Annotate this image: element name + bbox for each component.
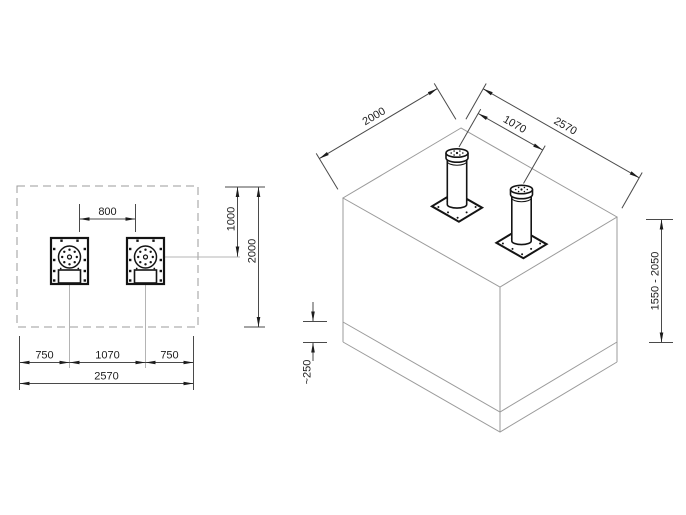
- dim-depth-range: 1550 - 2050: [646, 220, 673, 343]
- bollard-iso-left: [432, 149, 482, 222]
- dim-depth-range-label: 1550 - 2050: [650, 252, 662, 311]
- dim-clear-spacing: 800: [80, 204, 136, 232]
- dim-base-thickness-label: ~250: [302, 360, 314, 385]
- dim-edge-left-label: 750: [35, 350, 53, 362]
- dim-bottom-row: 750 1070 750 2570: [20, 336, 194, 390]
- dim-center-spacing-label: 1070: [95, 350, 119, 362]
- dim-overall-width-label: 2570: [94, 371, 118, 383]
- bollard-flange-plan-left: [51, 238, 88, 284]
- technical-drawing: 800 1000 2000 750 1070 750 2570: [0, 0, 686, 515]
- drawing-canvas: 800 1000 2000 750 1070 750 2570: [0, 0, 686, 515]
- dim-overall-depth: 2000: [244, 187, 265, 327]
- bollard-iso-right: [496, 185, 546, 258]
- dim-edge-right-label: 750: [160, 350, 178, 362]
- plan-view: 800 1000 2000 750 1070 750 2570: [17, 186, 265, 390]
- dim-center-from-top-label: 1000: [226, 207, 238, 231]
- dim-bollard-spacing: 1070: [459, 109, 545, 183]
- dim-clear-spacing-label: 800: [98, 206, 116, 218]
- bollard-flange-plan-right: [127, 238, 164, 284]
- dim-pit-length-label: 2570: [552, 115, 579, 138]
- dim-bollard-spacing-label: 1070: [501, 114, 528, 137]
- foundation-block: [343, 128, 617, 432]
- dim-pit-width-label: 2000: [361, 105, 388, 128]
- dim-base-thickness: ~250: [302, 302, 328, 384]
- dim-overall-depth-label: 2000: [247, 239, 259, 263]
- dim-pit-width: 2000: [316, 83, 456, 189]
- iso-view: 2000 2570 1070 1550 - 2050: [302, 83, 674, 432]
